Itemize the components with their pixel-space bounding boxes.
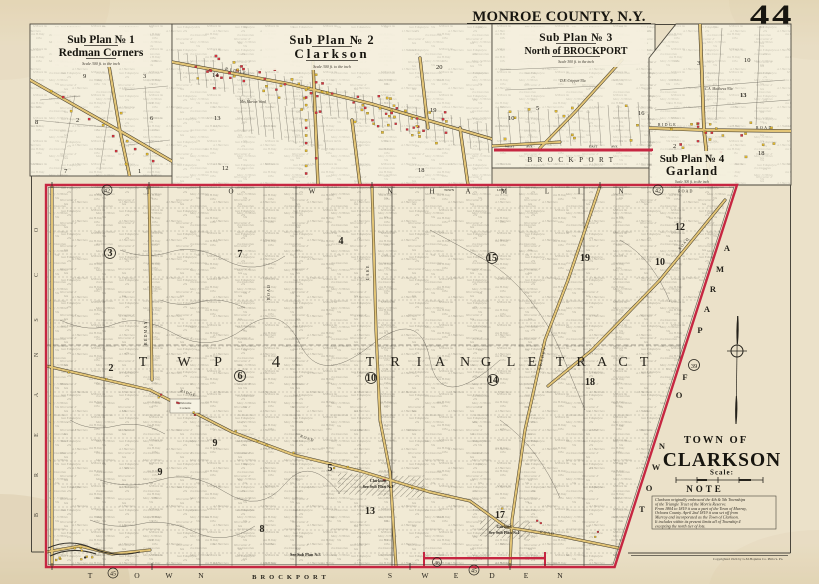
svg-text:R: R bbox=[710, 284, 717, 294]
svg-text:A: A bbox=[34, 392, 40, 397]
svg-text:LAKE: LAKE bbox=[365, 265, 370, 280]
svg-text:ROAD: ROAD bbox=[678, 189, 693, 194]
svg-text:19: 19 bbox=[430, 107, 437, 114]
svg-text:19: 19 bbox=[580, 253, 590, 264]
svg-text:W: W bbox=[309, 188, 316, 196]
svg-text:16: 16 bbox=[638, 110, 645, 117]
svg-text:10: 10 bbox=[655, 257, 665, 268]
svg-text:TOWN OF: TOWN OF bbox=[684, 435, 748, 446]
svg-text:2: 2 bbox=[76, 117, 79, 124]
svg-text:10: 10 bbox=[744, 57, 751, 64]
svg-text:R: R bbox=[576, 355, 586, 370]
svg-text:G: G bbox=[481, 355, 491, 370]
svg-text:T: T bbox=[639, 504, 645, 514]
svg-text:D.E. Crippen 35a: D.E. Crippen 35a bbox=[559, 79, 586, 83]
svg-text:W: W bbox=[652, 462, 661, 472]
svg-text:5: 5 bbox=[328, 463, 333, 474]
svg-text:W: W bbox=[165, 571, 173, 580]
svg-text:L: L bbox=[507, 355, 516, 370]
svg-text:8: 8 bbox=[260, 524, 265, 535]
svg-text:D: D bbox=[489, 571, 495, 580]
svg-text:North of BROCKPORT: North of BROCKPORT bbox=[525, 46, 628, 57]
svg-text:45: 45 bbox=[110, 572, 116, 578]
svg-text:C: C bbox=[618, 355, 627, 370]
svg-text:12: 12 bbox=[222, 165, 229, 172]
svg-text:T: T bbox=[556, 355, 565, 370]
svg-text:A: A bbox=[465, 188, 470, 196]
svg-text:46: 46 bbox=[434, 560, 440, 566]
svg-text:T: T bbox=[146, 188, 151, 196]
svg-text:R: R bbox=[390, 355, 400, 370]
svg-text:Corners: Corners bbox=[180, 406, 191, 410]
svg-text:Scale 300 ft. to the inch: Scale 300 ft. to the inch bbox=[675, 180, 709, 184]
svg-text:L: L bbox=[545, 188, 549, 196]
svg-text:O: O bbox=[646, 483, 653, 493]
svg-text:BROCKPORT: BROCKPORT bbox=[252, 574, 330, 581]
svg-text:W: W bbox=[421, 571, 429, 580]
svg-text:E: E bbox=[34, 433, 40, 437]
svg-text:2: 2 bbox=[109, 363, 114, 374]
svg-text:AVE: AVE bbox=[526, 145, 533, 149]
svg-text:8: 8 bbox=[35, 119, 38, 126]
svg-text:TOWN: TOWN bbox=[444, 188, 455, 192]
svg-text:7: 7 bbox=[238, 249, 243, 260]
svg-text:Garland: Garland bbox=[666, 164, 718, 178]
svg-text:10: 10 bbox=[508, 115, 515, 122]
svg-text:E: E bbox=[528, 355, 537, 370]
svg-text:Garland: Garland bbox=[496, 524, 512, 529]
svg-text:NOTE: NOTE bbox=[686, 484, 724, 494]
svg-text:Scale 300 ft. to the inch: Scale 300 ft. to the inch bbox=[558, 60, 594, 64]
svg-text:C.A. Matthews 95a: C.A. Matthews 95a bbox=[705, 87, 733, 91]
svg-text:N: N bbox=[34, 352, 40, 357]
svg-text:9: 9 bbox=[83, 73, 86, 80]
svg-text:18: 18 bbox=[758, 150, 765, 157]
svg-text:LINE: LINE bbox=[497, 188, 505, 192]
svg-text:R: R bbox=[34, 473, 40, 477]
svg-text:BROCKPORT: BROCKPORT bbox=[527, 156, 618, 164]
svg-text:C: C bbox=[34, 273, 40, 277]
svg-text:ROAD: ROAD bbox=[266, 284, 271, 300]
svg-text:3: 3 bbox=[143, 73, 146, 80]
svg-text:H: H bbox=[429, 188, 434, 196]
svg-text:T: T bbox=[139, 355, 148, 370]
svg-text:O: O bbox=[34, 227, 40, 232]
svg-text:P: P bbox=[214, 355, 222, 370]
svg-text:Welcome: Welcome bbox=[179, 401, 192, 405]
svg-text:Copyrighted 1924 by G.M.Hopkin: Copyrighted 1924 by G.M.Hopkins Co. Phil… bbox=[713, 557, 784, 561]
svg-text:RIDGE: RIDGE bbox=[658, 123, 677, 127]
svg-text:F: F bbox=[682, 372, 687, 382]
svg-text:S: S bbox=[34, 318, 40, 321]
svg-text:See Sub Plan №2: See Sub Plan №2 bbox=[363, 484, 394, 489]
svg-text:Scale 300 ft. to the inch: Scale 300 ft. to the inch bbox=[82, 61, 120, 66]
svg-text:Scale:: Scale: bbox=[710, 469, 734, 477]
svg-text:S: S bbox=[388, 571, 392, 580]
svg-text:45: 45 bbox=[471, 569, 477, 575]
svg-text:AVE: AVE bbox=[611, 145, 618, 149]
svg-text:I: I bbox=[417, 355, 422, 370]
svg-text:3: 3 bbox=[108, 248, 113, 259]
svg-text:Sub Plan № 3: Sub Plan № 3 bbox=[539, 32, 612, 44]
svg-text:Clarkson: Clarkson bbox=[370, 478, 387, 483]
svg-text:T: T bbox=[640, 355, 649, 370]
svg-text:N: N bbox=[557, 571, 563, 580]
svg-text:14: 14 bbox=[212, 72, 219, 79]
svg-text:T: T bbox=[88, 571, 93, 580]
svg-text:T: T bbox=[366, 355, 375, 370]
svg-text:Sub Plan № 2: Sub Plan № 2 bbox=[289, 33, 374, 47]
svg-text:A: A bbox=[597, 355, 608, 370]
svg-text:9: 9 bbox=[213, 438, 218, 449]
svg-text:9: 9 bbox=[158, 467, 163, 478]
svg-text:W: W bbox=[177, 355, 191, 370]
svg-text:Sub Plan № 1: Sub Plan № 1 bbox=[67, 34, 135, 46]
svg-text:1: 1 bbox=[138, 168, 141, 175]
svg-text:13: 13 bbox=[214, 115, 221, 122]
svg-text:20: 20 bbox=[436, 64, 443, 71]
svg-text:O: O bbox=[134, 571, 140, 580]
svg-text:B: B bbox=[34, 513, 40, 517]
svg-text:42: 42 bbox=[104, 188, 110, 194]
svg-text:Clarkson: Clarkson bbox=[294, 46, 369, 61]
svg-text:N: N bbox=[198, 571, 204, 580]
svg-text:A: A bbox=[704, 304, 711, 314]
svg-text:42: 42 bbox=[655, 188, 661, 194]
svg-text:N: N bbox=[618, 188, 623, 196]
svg-text:Scale 300 ft. to the inch: Scale 300 ft. to the inch bbox=[313, 64, 351, 69]
svg-text:P: P bbox=[697, 325, 702, 335]
svg-text:6: 6 bbox=[238, 371, 243, 382]
svg-text:E: E bbox=[524, 571, 529, 580]
svg-text:18: 18 bbox=[585, 377, 595, 388]
svg-text:See Sub Plan №4: See Sub Plan №4 bbox=[489, 530, 521, 535]
svg-text:M: M bbox=[716, 264, 724, 274]
svg-text:See Sub Plan №3: See Sub Plan №3 bbox=[290, 552, 321, 557]
svg-text:12: 12 bbox=[675, 222, 685, 233]
svg-text:17: 17 bbox=[495, 510, 505, 521]
svg-text:5: 5 bbox=[536, 105, 539, 112]
svg-text:18: 18 bbox=[418, 167, 425, 174]
svg-text:4: 4 bbox=[339, 236, 344, 247]
svg-text:WEST: WEST bbox=[505, 145, 515, 149]
svg-text:O: O bbox=[228, 188, 233, 196]
svg-text:2: 2 bbox=[673, 143, 676, 150]
svg-text:13: 13 bbox=[365, 506, 375, 517]
svg-text:Redman Corners: Redman Corners bbox=[59, 47, 144, 59]
svg-text:excepting the north tier of lo: excepting the north tier of lots. bbox=[655, 523, 705, 528]
svg-text:E: E bbox=[454, 571, 459, 580]
svg-text:A: A bbox=[724, 243, 731, 253]
svg-text:EAST: EAST bbox=[589, 145, 598, 149]
svg-text:N: N bbox=[387, 188, 392, 196]
svg-text:O: O bbox=[676, 390, 683, 400]
svg-text:13: 13 bbox=[740, 92, 747, 99]
svg-text:3: 3 bbox=[697, 60, 700, 67]
svg-text:4: 4 bbox=[272, 352, 281, 371]
svg-text:REDMAN: REDMAN bbox=[143, 320, 148, 345]
svg-text:39: 39 bbox=[691, 363, 698, 370]
svg-text:N: N bbox=[460, 355, 470, 370]
svg-text:A: A bbox=[435, 355, 446, 370]
svg-text:MONROE COUNTY, N.Y.: MONROE COUNTY, N.Y. bbox=[472, 9, 645, 25]
svg-text:Mrs Marion Ward: Mrs Marion Ward bbox=[239, 100, 266, 104]
